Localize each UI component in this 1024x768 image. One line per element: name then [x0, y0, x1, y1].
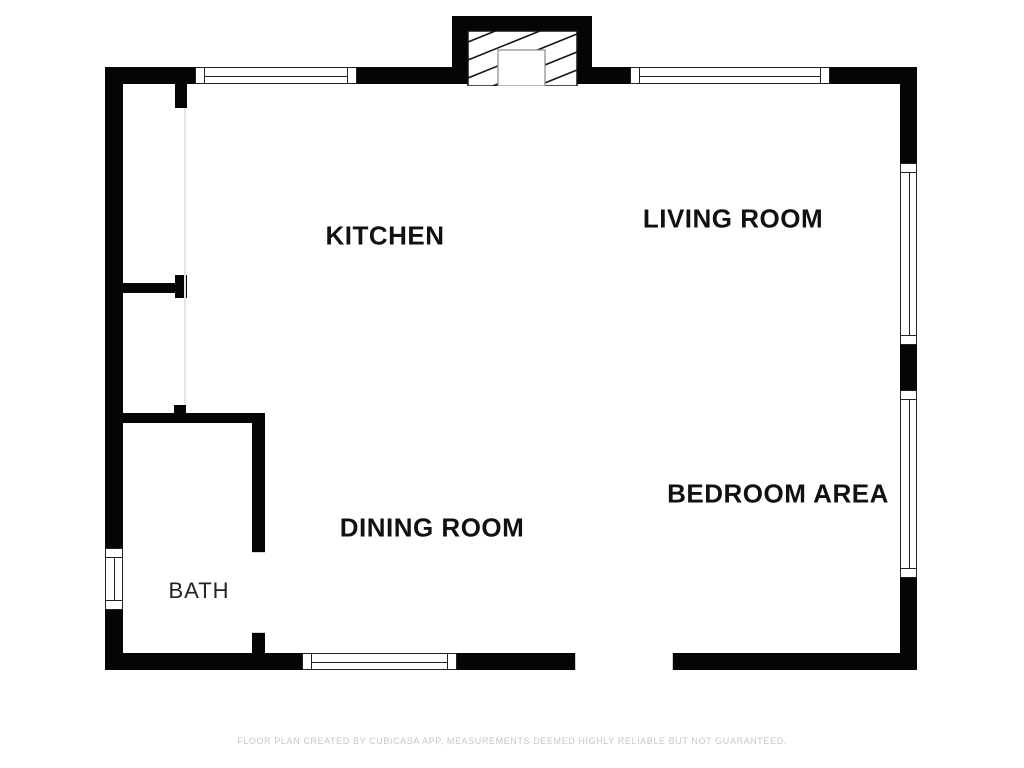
wall-bath-right-upper	[252, 413, 265, 552]
wall-bath-right-lower	[252, 633, 265, 653]
window-pane-line	[909, 399, 910, 569]
footer-disclaimer: FLOOR PLAN CREATED BY CUBICASA APP, MEAS…	[0, 736, 1024, 746]
wall-right	[900, 67, 917, 670]
room-label-bath: BATH	[168, 578, 229, 604]
room-label-dining-room: DINING ROOM	[340, 513, 525, 544]
wall-closet-middle	[123, 283, 175, 293]
wall-closet-top-stub	[175, 84, 187, 108]
entry-door-opening	[575, 653, 673, 670]
firebox	[498, 50, 545, 86]
wall-bath-top-stub	[174, 405, 186, 413]
fireplace-chimney-icon	[452, 16, 592, 86]
window-bath-left	[105, 548, 123, 610]
window-living-top	[630, 67, 830, 84]
closet-divider-line	[184, 108, 186, 405]
floor-plan: KITCHEN LIVING ROOM DINING ROOM BEDROOM …	[0, 0, 1024, 768]
window-pane-line	[639, 76, 821, 77]
window-pane-line	[114, 557, 115, 601]
window-living-right	[900, 163, 917, 345]
room-label-bedroom-area: BEDROOM AREA	[667, 479, 889, 510]
window-pane-line	[204, 76, 348, 77]
room-label-living-room: LIVING ROOM	[643, 204, 823, 235]
window-pane-line	[909, 172, 910, 336]
window-kitchen-top	[195, 67, 357, 84]
wall-bottom-right-segment	[673, 653, 917, 670]
window-bedroom-right	[900, 390, 917, 578]
window-dining-bottom	[302, 653, 457, 670]
window-pane-line	[311, 662, 448, 663]
bath-door-opening	[252, 552, 265, 633]
room-label-kitchen: KITCHEN	[325, 221, 444, 252]
wall-bath-top	[123, 413, 263, 423]
